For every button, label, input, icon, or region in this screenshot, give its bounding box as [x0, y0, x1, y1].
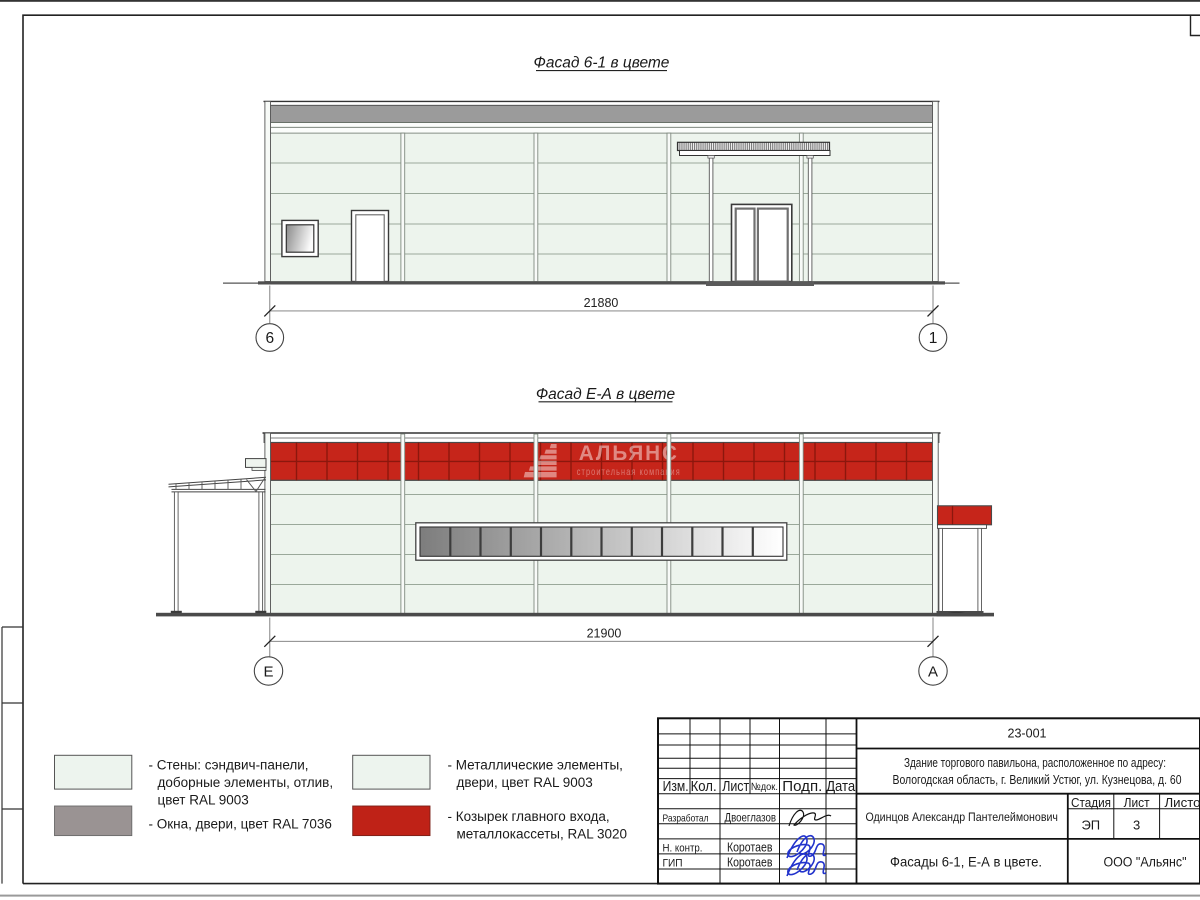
- svg-text:№док.: №док.: [751, 781, 778, 793]
- svg-text:цвет RAL 9003: цвет RAL 9003: [158, 793, 249, 808]
- svg-text:двери, цвет RAL 9003: двери, цвет RAL 9003: [457, 775, 593, 790]
- svg-text:21880: 21880: [584, 296, 619, 310]
- svg-text:Фасад 6-1 в цвете: Фасад 6-1 в цвете: [534, 54, 670, 71]
- svg-text:23-001: 23-001: [1008, 726, 1047, 741]
- svg-text:Фасады 6-1, Е-А в цвете.: Фасады 6-1, Е-А в цвете.: [890, 854, 1042, 870]
- svg-text:Кол.: Кол.: [691, 779, 717, 795]
- svg-text:АЛЬЯНС: АЛЬЯНС: [579, 441, 679, 465]
- svg-text:- Металлические элементы,: - Металлические элементы,: [448, 758, 623, 773]
- svg-text:Одинцов Александр Пантелеймоно: Одинцов Александр Пантелеймонович: [865, 810, 1058, 824]
- svg-text:Двоеглазов: Двоеглазов: [725, 811, 777, 825]
- svg-text:Листов: Листов: [1165, 796, 1200, 810]
- svg-text:- Стены: сэндвич-панели,: - Стены: сэндвич-панели,: [149, 758, 309, 773]
- svg-text:3: 3: [1133, 818, 1140, 833]
- svg-text:Изм.: Изм.: [663, 779, 689, 795]
- svg-text:Лист: Лист: [722, 779, 749, 795]
- svg-text:Коротаев: Коротаев: [727, 841, 773, 855]
- svg-text:Здание торгового павильона, ра: Здание торгового павильона, расположенно…: [904, 756, 1166, 770]
- svg-text:Разработал: Разработал: [663, 813, 709, 825]
- svg-text:Стадия: Стадия: [1071, 796, 1111, 810]
- svg-text:строительная компания: строительная компания: [577, 466, 681, 478]
- svg-text:Вологодская область, г. Велики: Вологодская область, г. Великий Устюг, у…: [893, 773, 1182, 787]
- svg-text:ГИП: ГИП: [663, 858, 683, 870]
- svg-text:Фасад Е-А в цвете: Фасад Е-А в цвете: [536, 386, 676, 403]
- svg-text:Дата: Дата: [826, 779, 856, 795]
- svg-text:Подп.: Подп.: [782, 779, 822, 795]
- svg-text:- Козырек главного входа,: - Козырек главного входа,: [448, 809, 610, 824]
- svg-text:Коротаев: Коротаев: [727, 856, 773, 870]
- svg-text:6: 6: [265, 330, 274, 347]
- svg-text:Е: Е: [263, 664, 273, 681]
- svg-text:металлокассеты, RAL 3020: металлокассеты, RAL 3020: [457, 827, 628, 842]
- svg-text:доборные элементы, отлив,: доборные элементы, отлив,: [158, 775, 334, 790]
- svg-text:А: А: [928, 664, 938, 681]
- svg-text:1: 1: [929, 330, 938, 347]
- svg-text:ЭП: ЭП: [1081, 818, 1100, 833]
- svg-text:ООО "Альянс": ООО "Альянс": [1104, 855, 1187, 870]
- svg-text:- Окна, двери, цвет RAL 7036: - Окна, двери, цвет RAL 7036: [149, 817, 332, 832]
- svg-text:Н. контр.: Н. контр.: [663, 843, 703, 855]
- svg-text:21900: 21900: [587, 627, 622, 641]
- svg-text:Лист: Лист: [1124, 796, 1150, 810]
